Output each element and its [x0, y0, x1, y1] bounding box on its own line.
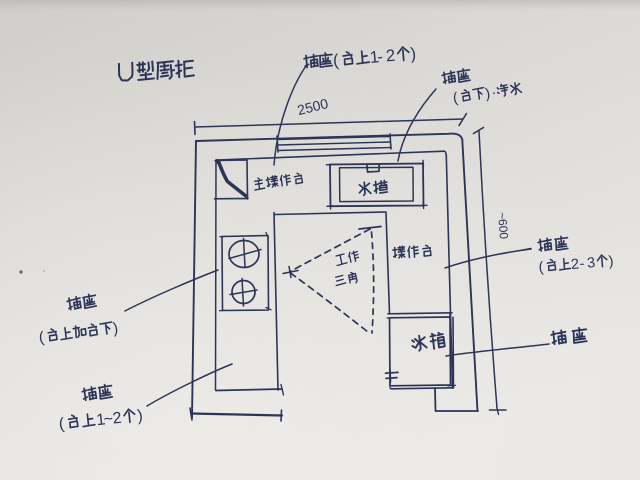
svg-text:3: 3	[586, 255, 595, 272]
svg-text:~600: ~600	[495, 212, 511, 240]
svg-text:2: 2	[385, 46, 396, 66]
svg-text:2: 2	[112, 409, 123, 428]
